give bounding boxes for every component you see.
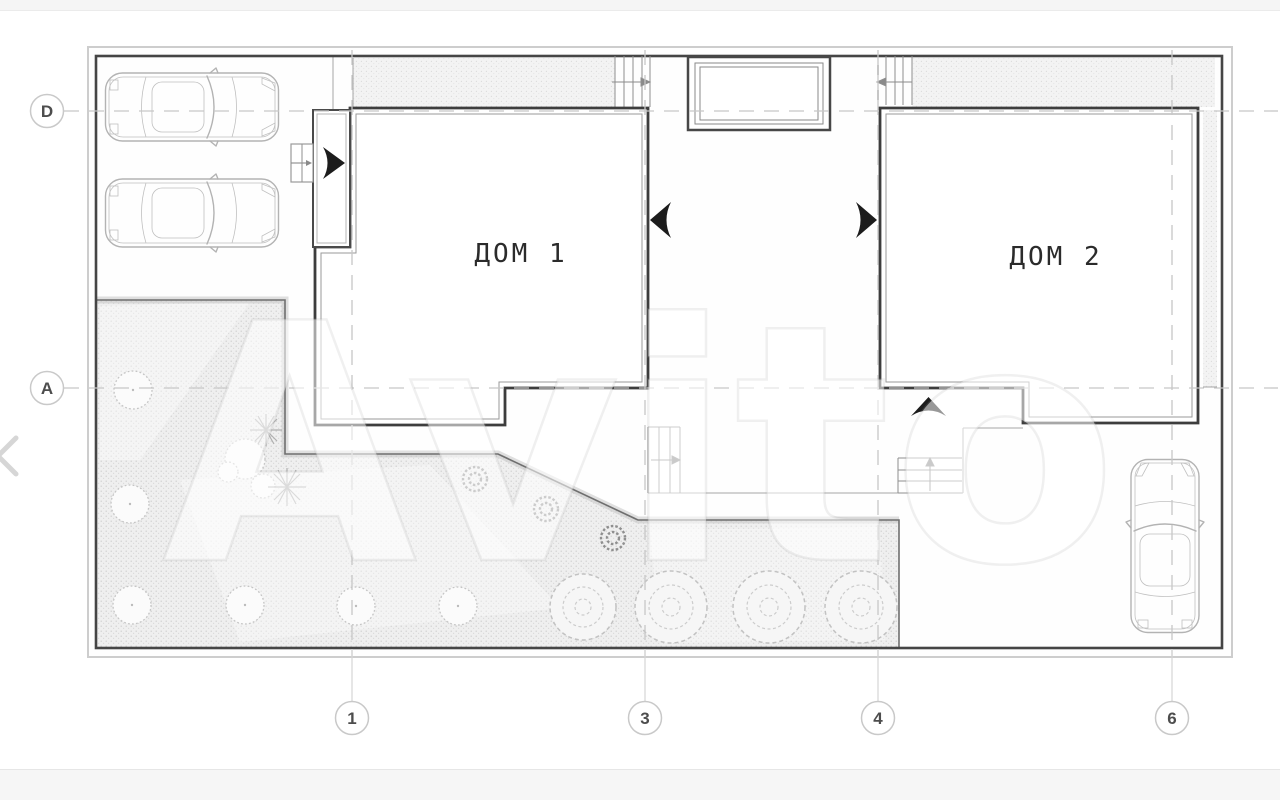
tree-icon — [113, 586, 151, 624]
tree-icon — [114, 371, 152, 409]
carousel-prev-icon[interactable] — [0, 430, 24, 482]
grid-col-label: 3 — [640, 709, 649, 728]
grid-row-label: D — [41, 102, 53, 121]
pool — [688, 57, 830, 130]
tree-icon — [111, 485, 149, 523]
window-symbol — [291, 144, 313, 182]
listing-photo-viewer: ДОМ 1 ДОМ 2 — [0, 0, 1280, 800]
house-1-porch — [313, 110, 350, 247]
site-plan-drawing: ДОМ 1 ДОМ 2 — [0, 0, 1280, 800]
grid-row-label: A — [41, 379, 53, 398]
avito-watermark: Avito — [162, 254, 1118, 638]
grid-col-label: 4 — [873, 709, 883, 728]
grid-col-label: 1 — [347, 709, 356, 728]
grid-col-label: 6 — [1167, 709, 1176, 728]
